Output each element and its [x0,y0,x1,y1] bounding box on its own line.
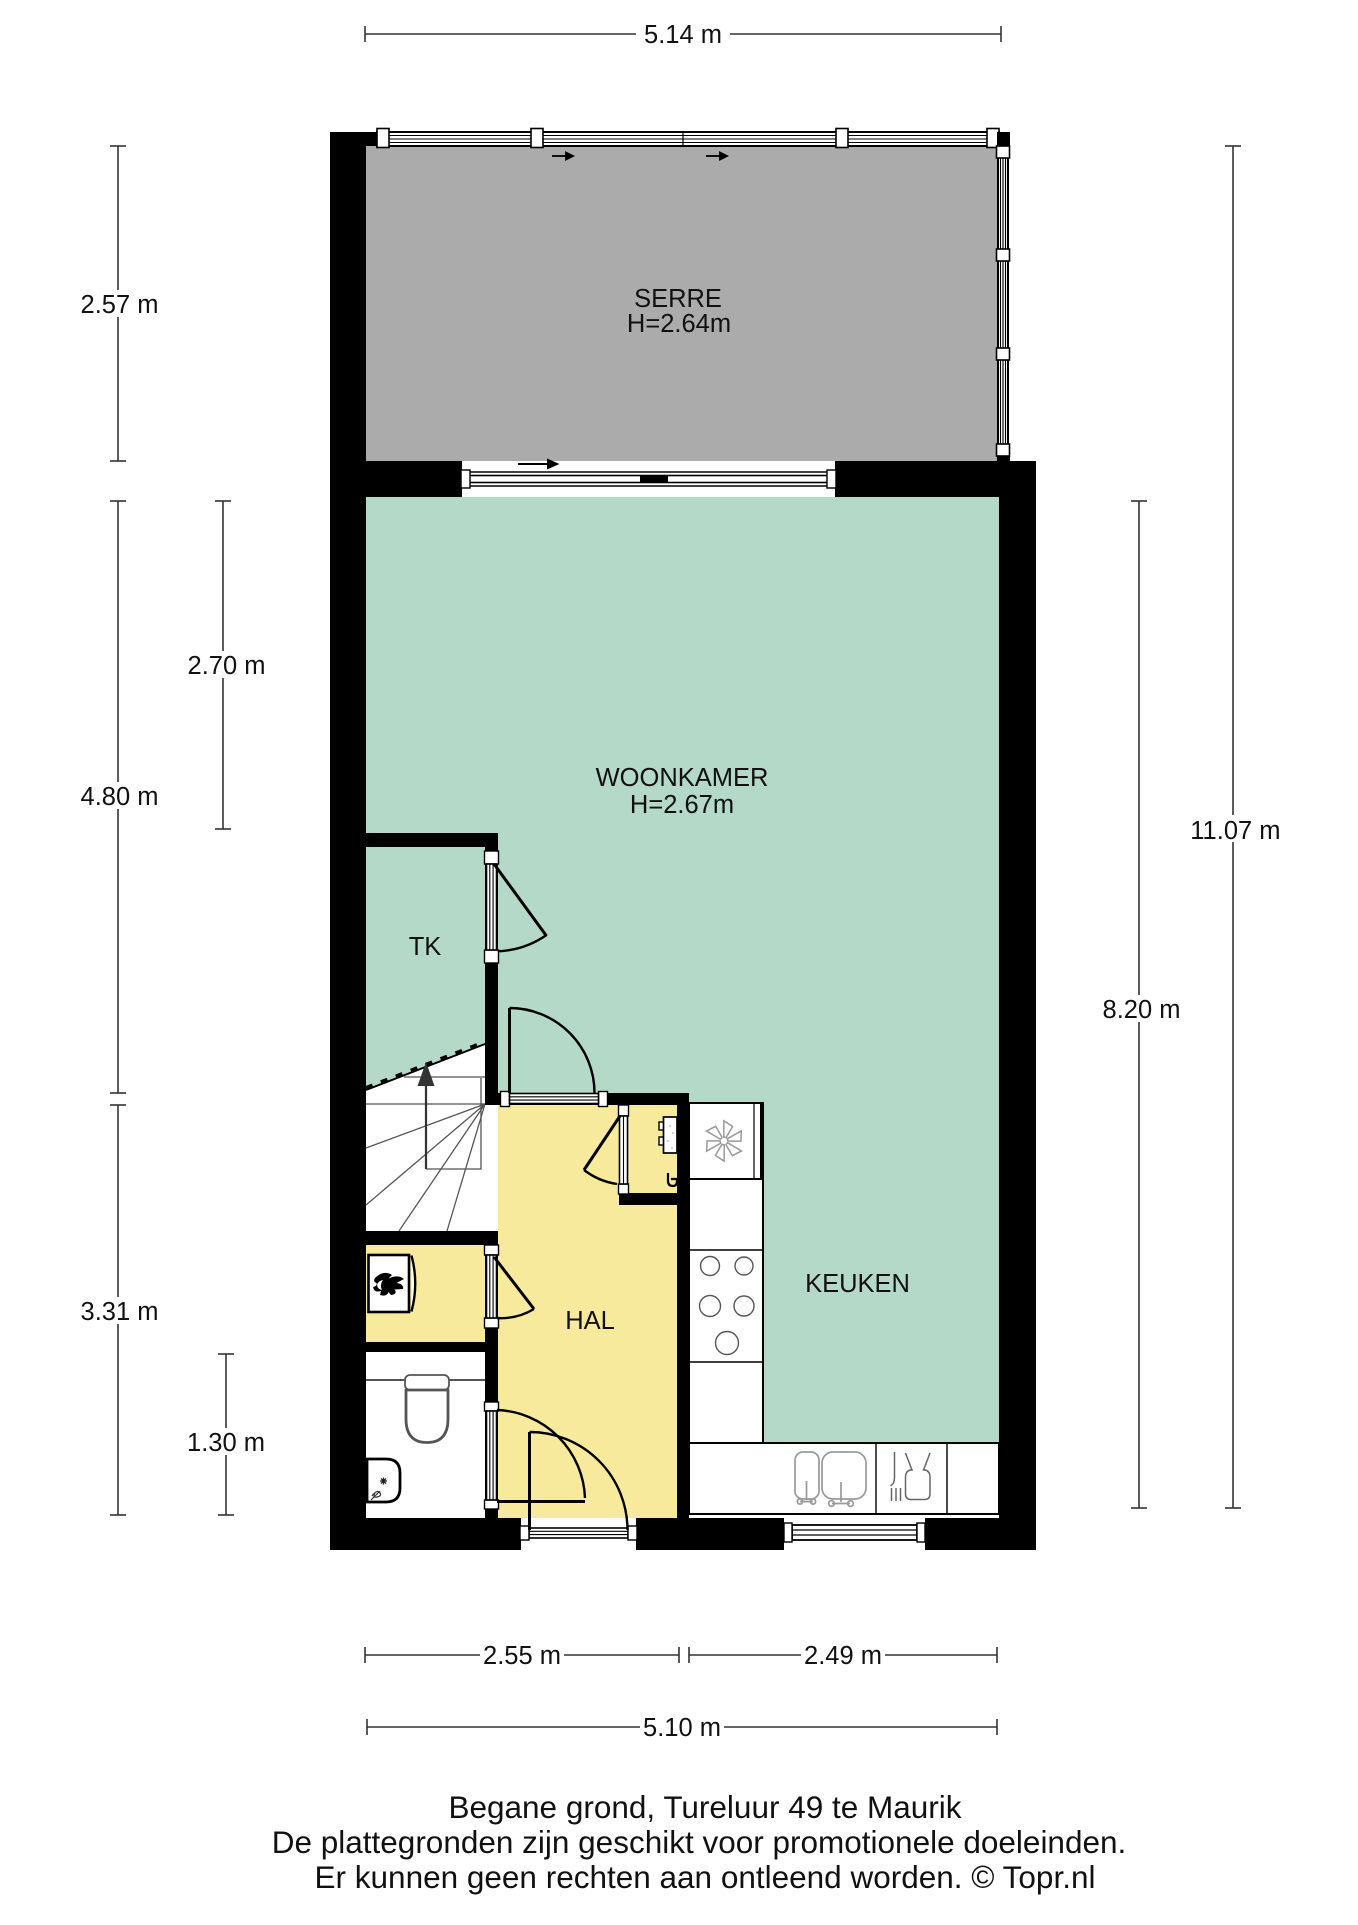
svg-text:HAL: HAL [565,1307,615,1335]
svg-text:5.10 m: 5.10 m [643,1714,721,1742]
svg-text:TK: TK [409,933,442,961]
svg-text:H=2.67m: H=2.67m [630,791,734,819]
svg-text:5.14 m: 5.14 m [644,21,722,49]
svg-text:Er kunnen geen rechten aan ont: Er kunnen geen rechten aan ontleend word… [315,1859,1096,1895]
svg-text:SERRE: SERRE [634,285,722,313]
svg-text:2.55 m: 2.55 m [483,1642,561,1670]
svg-text:De plattegronden zijn geschikt: De plattegronden zijn geschikt voor prom… [272,1824,1127,1860]
svg-text:2.70 m: 2.70 m [188,652,266,680]
svg-text:Begane grond, Tureluur 49 te M: Begane grond, Tureluur 49 te Maurik [448,1789,961,1825]
svg-text:8.20 m: 8.20 m [1103,996,1181,1024]
svg-text:4.80 m: 4.80 m [81,783,159,811]
svg-text:2.49 m: 2.49 m [804,1642,882,1670]
svg-text:3.31 m: 3.31 m [81,1298,159,1326]
svg-text:1.30 m: 1.30 m [187,1429,265,1457]
svg-text:11.07 m: 11.07 m [1190,817,1280,845]
svg-text:2.57 m: 2.57 m [81,291,159,319]
svg-text:WOONKAMER: WOONKAMER [596,764,769,792]
svg-text:H=2.64m: H=2.64m [627,310,731,338]
svg-text:KEUKEN: KEUKEN [805,1270,910,1298]
